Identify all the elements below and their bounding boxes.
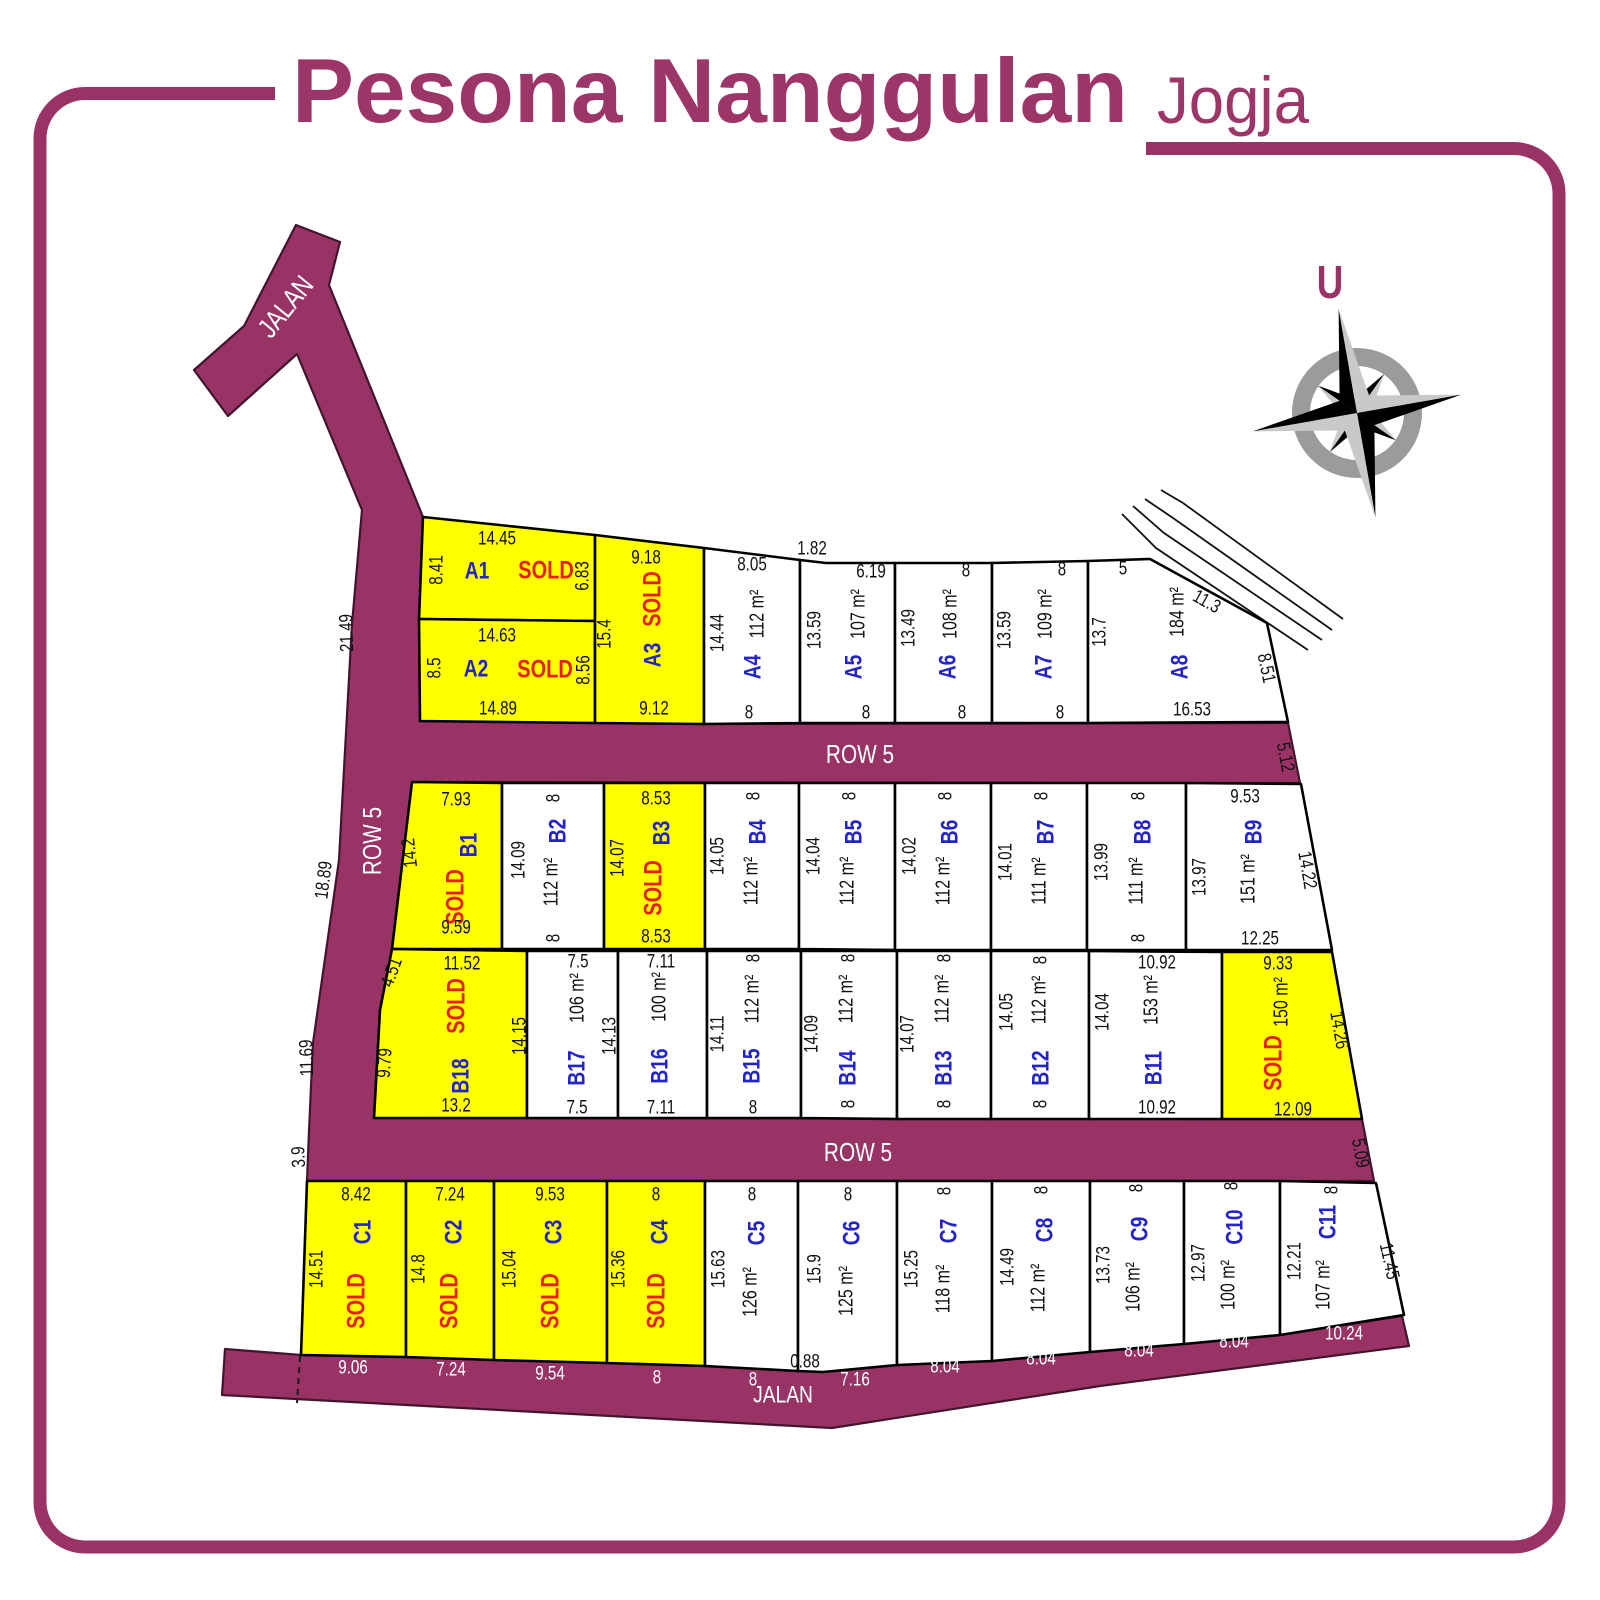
svg-text:A1: A1: [465, 556, 490, 584]
svg-text:112 m²: 112 m²: [932, 857, 954, 906]
svg-text:9.53: 9.53: [1230, 785, 1260, 807]
svg-text:14.09: 14.09: [507, 841, 529, 879]
svg-text:8: 8: [1029, 956, 1051, 964]
svg-text:14.63: 14.63: [478, 624, 516, 646]
svg-text:B11: B11: [1139, 1051, 1167, 1085]
svg-text:9.06: 9.06: [338, 1356, 368, 1378]
svg-text:8.04: 8.04: [1124, 1339, 1154, 1361]
svg-text:C2: C2: [439, 1220, 467, 1245]
svg-text:9.54: 9.54: [535, 1362, 565, 1384]
svg-text:125 m²: 125 m²: [835, 1266, 857, 1316]
svg-text:112 m²: 112 m²: [836, 857, 858, 906]
svg-text:8: 8: [742, 954, 764, 962]
svg-text:7.11: 7.11: [647, 1096, 675, 1118]
svg-text:0.88: 0.88: [790, 1350, 820, 1372]
svg-text:14.01: 14.01: [994, 843, 1016, 881]
svg-text:10.92: 10.92: [1138, 1096, 1176, 1118]
svg-text:8.5: 8.5: [423, 657, 445, 678]
svg-text:8: 8: [1058, 558, 1066, 580]
svg-text:B8: B8: [1128, 820, 1156, 845]
svg-text:C11: C11: [1313, 1205, 1341, 1239]
svg-text:8: 8: [958, 701, 966, 723]
svg-text:112 m²: 112 m²: [835, 975, 857, 1024]
svg-text:7.11: 7.11: [647, 950, 675, 972]
svg-text:ROW 5: ROW 5: [826, 740, 894, 769]
svg-text:B15: B15: [737, 1048, 765, 1083]
svg-text:A2: A2: [464, 654, 489, 682]
svg-text:C7: C7: [934, 1219, 962, 1244]
svg-text:8.53: 8.53: [641, 925, 671, 947]
svg-text:13.99: 13.99: [1090, 843, 1112, 881]
svg-text:8.04: 8.04: [1026, 1347, 1056, 1369]
svg-text:8: 8: [1056, 701, 1064, 723]
svg-text:SOLD: SOLD: [639, 860, 667, 916]
svg-text:8: 8: [838, 792, 860, 800]
svg-text:112 m²: 112 m²: [746, 590, 768, 639]
svg-text:A3: A3: [638, 643, 666, 668]
svg-text:7.24: 7.24: [436, 1358, 466, 1380]
svg-text:14.11: 14.11: [706, 1016, 728, 1053]
svg-text:100 m²: 100 m²: [648, 972, 670, 1022]
svg-text:7.5: 7.5: [567, 950, 588, 972]
svg-text:8: 8: [652, 1183, 660, 1205]
svg-text:SOLD: SOLD: [442, 978, 470, 1034]
svg-text:ROW 5: ROW 5: [824, 1138, 892, 1167]
svg-text:100 m²: 100 m²: [1217, 1260, 1239, 1310]
svg-text:8: 8: [933, 1100, 955, 1108]
svg-text:107 m²: 107 m²: [847, 589, 869, 639]
svg-text:B17: B17: [562, 1050, 590, 1085]
svg-text:8: 8: [1029, 1100, 1051, 1108]
svg-text:10.24: 10.24: [1325, 1322, 1363, 1344]
svg-text:8: 8: [1030, 792, 1052, 800]
svg-text:18.89: 18.89: [310, 860, 337, 900]
svg-text:Pesona Nanggulan: Pesona Nanggulan: [292, 41, 1128, 142]
svg-text:15.9: 15.9: [803, 1254, 825, 1284]
svg-text:C8: C8: [1030, 1218, 1058, 1243]
svg-text:151 m²: 151 m²: [1237, 854, 1259, 904]
svg-text:8: 8: [748, 1183, 756, 1205]
svg-text:109 m²: 109 m²: [1034, 589, 1056, 639]
svg-text:6.83: 6.83: [571, 561, 593, 591]
svg-text:8: 8: [1320, 1186, 1342, 1194]
svg-text:14.05: 14.05: [706, 837, 728, 875]
svg-text:C3: C3: [539, 1220, 567, 1245]
svg-text:SOLD: SOLD: [642, 1273, 670, 1329]
svg-text:13.59: 13.59: [803, 611, 825, 649]
svg-text:8: 8: [742, 792, 764, 800]
svg-text:14.45: 14.45: [478, 527, 516, 549]
svg-text:Jogja: Jogja: [1157, 63, 1309, 137]
svg-text:A6: A6: [933, 655, 961, 680]
svg-text:B3: B3: [647, 821, 675, 846]
svg-text:JALAN: JALAN: [753, 1380, 813, 1408]
svg-text:B5: B5: [839, 820, 867, 845]
svg-text:7.16: 7.16: [840, 1368, 870, 1390]
svg-text:SOLD: SOLD: [435, 1273, 463, 1329]
svg-text:9.79: 9.79: [372, 1047, 396, 1078]
svg-text:7.5: 7.5: [566, 1096, 587, 1118]
svg-text:126 m²: 126 m²: [739, 1267, 761, 1317]
svg-text:8: 8: [844, 1183, 852, 1205]
svg-text:B13: B13: [929, 1050, 957, 1085]
svg-text:9.53: 9.53: [535, 1183, 565, 1205]
svg-text:8.41: 8.41: [425, 555, 447, 585]
svg-text:8: 8: [653, 1366, 661, 1388]
svg-text:15.4: 15.4: [593, 619, 615, 649]
svg-text:112 m²: 112 m²: [931, 975, 953, 1024]
svg-text:15.36: 15.36: [607, 1250, 629, 1288]
svg-text:10.92: 10.92: [1138, 951, 1176, 973]
svg-text:8.05: 8.05: [737, 553, 767, 575]
svg-text:14.89: 14.89: [479, 697, 517, 719]
svg-text:15.25: 15.25: [900, 1250, 922, 1288]
svg-text:16.53: 16.53: [1173, 698, 1211, 720]
svg-text:13.73: 13.73: [1092, 1246, 1114, 1284]
svg-text:14.49: 14.49: [996, 1248, 1018, 1286]
svg-text:B6: B6: [935, 820, 963, 845]
svg-text:C1: C1: [348, 1220, 376, 1245]
svg-text:9.59: 9.59: [441, 916, 471, 938]
svg-text:8: 8: [934, 792, 956, 800]
svg-text:14.05: 14.05: [995, 993, 1017, 1031]
svg-text:14.04: 14.04: [802, 837, 824, 875]
svg-text:8: 8: [962, 559, 970, 581]
svg-text:8: 8: [745, 701, 753, 723]
svg-text:U: U: [1317, 256, 1344, 308]
svg-text:3.9: 3.9: [286, 1146, 309, 1168]
svg-text:14.8: 14.8: [407, 1254, 429, 1284]
svg-text:112 m²: 112 m²: [540, 858, 562, 907]
svg-text:14.51: 14.51: [305, 1250, 327, 1288]
svg-text:14.02: 14.02: [898, 837, 920, 875]
svg-text:8: 8: [749, 1096, 757, 1118]
svg-text:8.42: 8.42: [341, 1183, 371, 1205]
svg-text:C10: C10: [1220, 1209, 1248, 1244]
svg-text:B1: B1: [454, 833, 482, 858]
svg-text:14.2: 14.2: [396, 837, 421, 869]
svg-text:9.18: 9.18: [631, 546, 661, 568]
svg-text:C6: C6: [837, 1221, 865, 1246]
svg-text:21.49: 21.49: [334, 614, 357, 653]
svg-text:8.56: 8.56: [572, 655, 594, 685]
svg-text:8.04: 8.04: [1219, 1330, 1249, 1352]
svg-text:13.7: 13.7: [1088, 617, 1110, 647]
svg-text:SOLD: SOLD: [1259, 1035, 1287, 1091]
svg-text:8: 8: [1127, 934, 1149, 942]
svg-text:B18: B18: [446, 1058, 474, 1093]
svg-text:A5: A5: [839, 655, 867, 680]
svg-text:8: 8: [542, 794, 564, 802]
svg-text:9.33: 9.33: [1263, 952, 1293, 974]
svg-text:11.52: 11.52: [444, 952, 481, 974]
svg-text:8: 8: [933, 954, 955, 962]
svg-text:14.07: 14.07: [606, 839, 628, 877]
svg-text:B14: B14: [833, 1050, 861, 1085]
svg-text:8: 8: [933, 1187, 955, 1195]
svg-text:112 m²: 112 m²: [741, 975, 763, 1024]
svg-text:C5: C5: [742, 1221, 770, 1246]
svg-text:118 m²: 118 m²: [932, 1265, 954, 1314]
svg-text:C4: C4: [645, 1220, 673, 1245]
svg-text:SOLD: SOLD: [638, 571, 666, 627]
svg-text:106 m²: 106 m²: [566, 973, 588, 1023]
svg-text:8: 8: [837, 954, 859, 962]
svg-text:SOLD: SOLD: [517, 655, 573, 683]
svg-text:107 m²: 107 m²: [1312, 1260, 1334, 1310]
svg-text:14.04: 14.04: [1091, 993, 1113, 1031]
svg-text:A4: A4: [738, 655, 766, 680]
svg-text:11.69: 11.69: [294, 1039, 317, 1077]
svg-text:13.49: 13.49: [897, 609, 919, 647]
svg-text:6.19: 6.19: [856, 560, 886, 582]
svg-text:13.2: 13.2: [441, 1094, 471, 1116]
svg-text:12.21: 12.21: [1283, 1242, 1305, 1280]
svg-text:8: 8: [1030, 1186, 1052, 1194]
svg-text:15.63: 15.63: [707, 1250, 729, 1288]
svg-text:8: 8: [1220, 1182, 1242, 1190]
svg-text:8: 8: [862, 701, 870, 723]
svg-text:8: 8: [1127, 792, 1149, 800]
svg-text:A8: A8: [1165, 655, 1193, 680]
svg-text:112 m²: 112 m²: [740, 857, 762, 906]
svg-text:15.04: 15.04: [498, 1250, 520, 1288]
svg-text:8: 8: [542, 934, 564, 942]
svg-text:B9: B9: [1239, 820, 1267, 845]
svg-text:C9: C9: [1125, 1217, 1153, 1242]
svg-text:12.09: 12.09: [1274, 1098, 1312, 1120]
svg-text:8.04: 8.04: [930, 1355, 960, 1377]
svg-text:ROW 5: ROW 5: [358, 807, 387, 875]
svg-text:112 m²: 112 m²: [1028, 976, 1050, 1025]
svg-text:9.12: 9.12: [639, 697, 669, 719]
svg-text:13.97: 13.97: [1188, 858, 1210, 896]
svg-text:7.24: 7.24: [435, 1183, 465, 1205]
svg-text:111 m²: 111 m²: [1125, 857, 1147, 904]
svg-text:108 m²: 108 m²: [939, 589, 961, 639]
svg-text:14.07: 14.07: [896, 1015, 918, 1053]
svg-text:SOLD: SOLD: [518, 556, 574, 584]
svg-text:111 m²: 111 m²: [1028, 857, 1050, 904]
svg-text:SOLD: SOLD: [536, 1273, 564, 1329]
svg-text:8: 8: [837, 1100, 859, 1108]
svg-text:150 m²: 150 m²: [1270, 977, 1292, 1027]
svg-text:B2: B2: [543, 819, 571, 844]
svg-text:B4: B4: [743, 820, 771, 845]
svg-text:184 m²: 184 m²: [1166, 587, 1188, 637]
svg-text:8: 8: [1125, 1184, 1147, 1192]
svg-text:1.82: 1.82: [797, 537, 827, 559]
svg-text:8.53: 8.53: [641, 787, 671, 809]
svg-text:SOLD: SOLD: [342, 1273, 370, 1329]
svg-text:12.97: 12.97: [1187, 1244, 1209, 1282]
svg-text:14.09: 14.09: [800, 1015, 822, 1053]
svg-text:B7: B7: [1031, 820, 1059, 845]
svg-text:12.25: 12.25: [1241, 927, 1279, 949]
svg-text:14.44: 14.44: [706, 614, 728, 652]
svg-text:13.59: 13.59: [993, 611, 1015, 649]
svg-text:7.93: 7.93: [441, 788, 471, 810]
svg-text:B16: B16: [645, 1048, 673, 1083]
svg-text:106 m²: 106 m²: [1122, 1262, 1144, 1312]
svg-text:112 m²: 112 m²: [1027, 1264, 1049, 1313]
svg-text:5: 5: [1119, 557, 1127, 579]
svg-text:A7: A7: [1029, 655, 1057, 680]
svg-text:B12: B12: [1026, 1050, 1054, 1085]
svg-text:153 m²: 153 m²: [1140, 975, 1162, 1025]
